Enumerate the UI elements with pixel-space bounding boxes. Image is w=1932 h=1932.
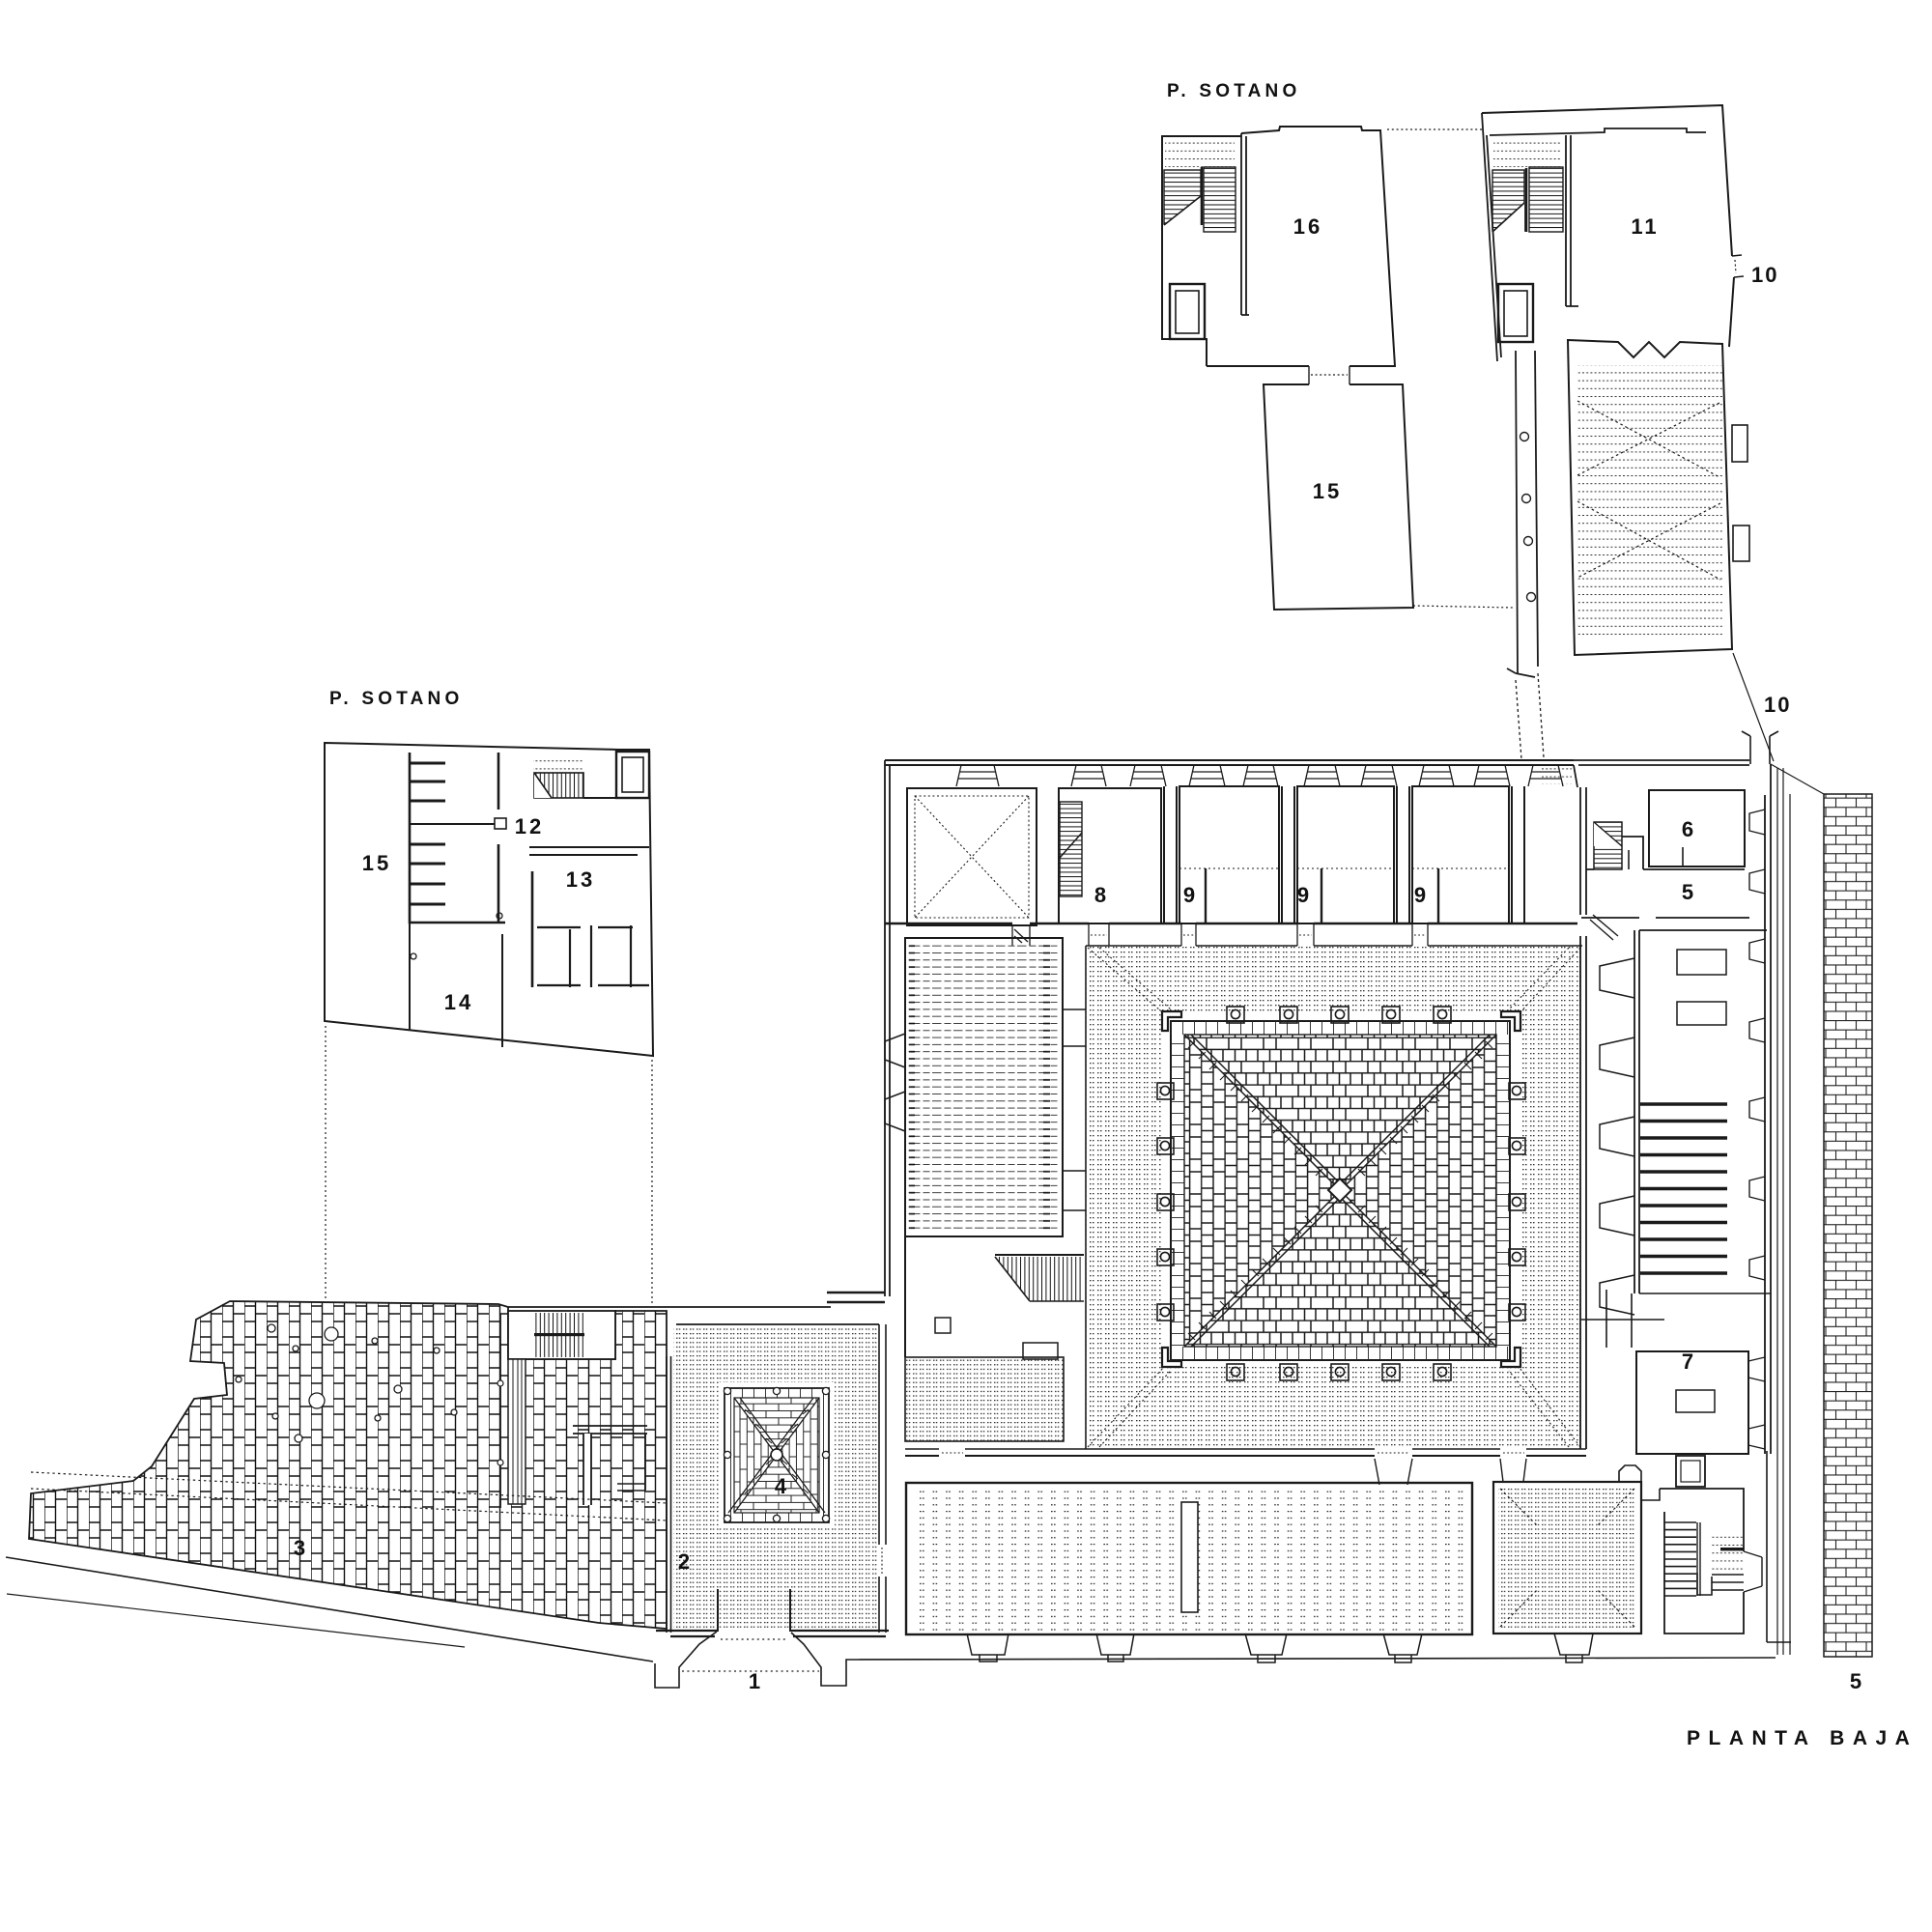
svg-text:15: 15 <box>1313 479 1342 503</box>
svg-text:14: 14 <box>444 990 473 1014</box>
svg-text:1: 1 <box>749 1669 760 1693</box>
svg-text:4: 4 <box>775 1474 787 1498</box>
svg-text:P. SOTANO: P. SOTANO <box>329 689 463 709</box>
svg-text:6: 6 <box>1682 817 1693 841</box>
svg-text:7: 7 <box>1682 1350 1693 1374</box>
svg-text:3: 3 <box>294 1536 305 1560</box>
svg-text:15: 15 <box>362 851 391 875</box>
svg-text:12: 12 <box>515 814 544 838</box>
svg-text:16: 16 <box>1293 214 1322 239</box>
svg-text:9: 9 <box>1414 883 1426 907</box>
svg-text:P. SOTANO: P. SOTANO <box>1167 81 1300 101</box>
svg-text:5: 5 <box>1682 880 1693 904</box>
svg-text:10: 10 <box>1764 693 1791 717</box>
svg-text:PLANTA BAJA: PLANTA BAJA <box>1687 1727 1918 1749</box>
svg-text:8: 8 <box>1094 883 1106 907</box>
svg-text:13: 13 <box>566 867 595 892</box>
svg-text:2: 2 <box>678 1549 690 1574</box>
svg-text:9: 9 <box>1297 883 1309 907</box>
svg-text:9: 9 <box>1183 883 1195 907</box>
svg-text:11: 11 <box>1631 214 1659 239</box>
svg-text:5: 5 <box>1850 1669 1861 1693</box>
svg-text:10: 10 <box>1751 263 1778 287</box>
